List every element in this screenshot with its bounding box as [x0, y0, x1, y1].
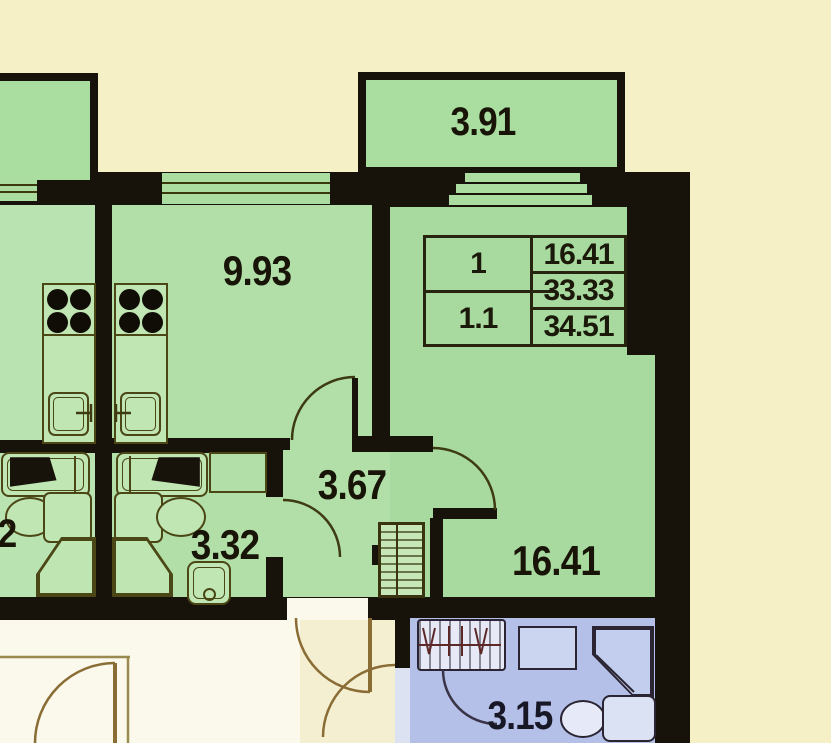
- window-neighbor: [0, 176, 37, 201]
- burner-icon: [119, 289, 140, 310]
- burner-icon: [47, 312, 68, 333]
- vent-divider: [396, 525, 398, 595]
- stamp-living-area: 16.41: [533, 238, 624, 274]
- tub-divider: [74, 456, 76, 492]
- sink-basin: [53, 397, 84, 431]
- stamp-layout-id: 1.1: [426, 293, 542, 344]
- burner-icon: [70, 312, 91, 333]
- hall-area-label: 3.67: [318, 464, 386, 506]
- doorway-bathroom: [266, 497, 283, 557]
- burner-icon: [70, 289, 91, 310]
- balcony-door-step-2: [456, 184, 587, 193]
- balcony-area-label: 3.91: [451, 102, 516, 142]
- burner-icon: [47, 289, 68, 310]
- toilet-tank-neighbor: [43, 492, 92, 543]
- burner-icon: [142, 312, 163, 333]
- drain-icon: [203, 588, 216, 601]
- vent-shaft: [378, 522, 425, 598]
- washer-slot: [209, 452, 267, 493]
- stove-burners: [116, 285, 166, 336]
- burner-icon: [142, 289, 163, 310]
- washbasin-lower: [518, 626, 577, 670]
- doorway-lower-bathroom: [395, 668, 410, 743]
- floor-plan: 1 1.1 16.41 33.33 34.51: [0, 0, 831, 743]
- window-kitchen: [162, 173, 330, 204]
- corridor-floor-shade: [300, 618, 395, 743]
- stove-burners-neighbor: [44, 285, 94, 336]
- kitchen-sink-neighbor: [48, 392, 89, 436]
- kitchen-unit-neighbor: [42, 283, 96, 444]
- wall-stub-hall: [352, 436, 433, 452]
- washing-machine: [417, 619, 506, 671]
- kitchen-unit: [114, 283, 168, 444]
- wall-vert-room: [430, 518, 443, 598]
- balcony-door-step-1: [465, 173, 580, 182]
- neighbor-area-label-fragment: 2: [0, 514, 16, 554]
- stamp-total-area: 34.51: [533, 310, 624, 344]
- lower-bathroom-area-label: 3.15: [488, 696, 553, 736]
- sink-basin: [125, 397, 156, 431]
- doorway-entry-gap: [287, 598, 368, 620]
- bathroom-area-label: 3.32: [191, 524, 259, 566]
- balcony-door-step-3: [449, 195, 592, 205]
- bathtub: [116, 452, 208, 497]
- toilet-bowl-lower: [560, 700, 606, 738]
- kitchen-sink: [120, 392, 161, 436]
- burner-icon: [119, 312, 140, 333]
- balcony-left: [0, 73, 98, 188]
- kitchen-living-area-label: 9.93: [223, 250, 291, 292]
- bathtub-neighbor: [1, 452, 90, 497]
- tub-divider: [129, 456, 131, 492]
- toilet-tank-lower: [602, 695, 656, 742]
- stamp-floor-area: 33.33: [533, 274, 624, 310]
- living-room-area-label: 16.41: [512, 540, 600, 582]
- apartment-stamp-table: 1 1.1 16.41 33.33 34.51: [423, 235, 627, 347]
